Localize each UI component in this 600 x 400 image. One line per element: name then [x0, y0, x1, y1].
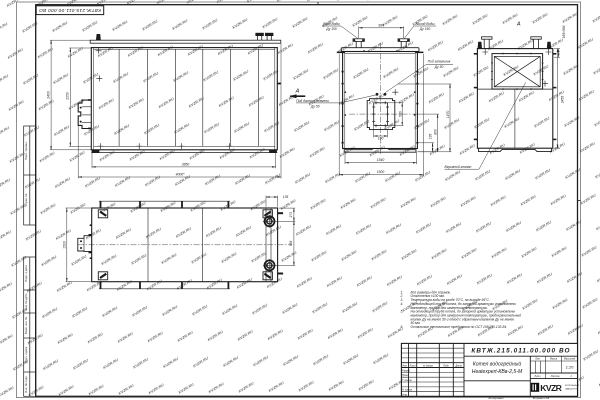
svg-text:КОТЕЛЬНЫЙ: КОТЕЛЬНЫЙ: [565, 384, 579, 387]
svg-text:А: А: [295, 88, 300, 94]
svg-text:Heatexpert-КВв-2,5-М: Heatexpert-КВв-2,5-М: [472, 369, 523, 375]
svg-text:580: 580: [398, 111, 402, 117]
svg-text:Ду 50: Ду 50: [434, 65, 444, 69]
svg-text:ЗАВОД РОС.: ЗАВОД РОС.: [565, 388, 579, 391]
svg-text:Взам. инв. №: Взам. инв. №: [24, 317, 28, 334]
svg-text:Инв. № подл.: Инв. № подл.: [24, 375, 28, 393]
svg-text:Подп. и дата: Подп. и дата: [24, 346, 28, 363]
svg-text:1:20: 1:20: [566, 365, 575, 370]
svg-text:KVZR: KVZR: [540, 383, 562, 393]
svg-text:Дата: Дата: [454, 364, 462, 367]
svg-text:Листов: Листов: [550, 375, 560, 378]
svg-text:6.: 6.: [401, 325, 404, 329]
svg-text:273: 273: [289, 212, 293, 219]
svg-text:Под запальник: Под запальник: [428, 60, 451, 64]
svg-text:Под датчик пламени: Под датчик пламени: [296, 99, 329, 103]
svg-text:954: 954: [378, 23, 384, 27]
svg-text:КВТЖ.215.011.00.000 ВО: КВТЖ.215.011.00.000 ВО: [471, 347, 570, 354]
svg-text:3850: 3850: [182, 162, 190, 166]
svg-text:4000*: 4000*: [176, 172, 186, 176]
svg-text:Пров.: Пров.: [402, 374, 409, 377]
svg-text:Копировал: Копировал: [489, 396, 504, 400]
svg-text:Ду 50: Ду 50: [310, 105, 320, 109]
svg-text:190: 190: [378, 137, 384, 141]
svg-text:Ду 150: Ду 150: [419, 27, 431, 31]
svg-text:Остальные технические требован: Остальные технические требования по ОСТ …: [411, 325, 508, 329]
svg-text:Подп.: Подп.: [443, 364, 450, 367]
svg-text:195: 195: [429, 134, 433, 140]
svg-text:185×954: 185×954: [562, 25, 566, 38]
svg-text:Взрывной клапан: Взрывной клапан: [445, 165, 472, 169]
svg-text:Лист: Лист: [409, 364, 416, 367]
svg-text:Изм.: Изм.: [402, 364, 407, 367]
svg-text:1540: 1540: [377, 158, 385, 162]
svg-text:Подп. и дата: Подп. и дата: [24, 265, 28, 282]
svg-text:5.: 5.: [401, 310, 404, 314]
svg-text:Инв. № дубл.: Инв. № дубл.: [24, 293, 28, 311]
svg-text:954: 954: [289, 240, 293, 246]
svg-text:135: 135: [283, 195, 289, 199]
svg-text:Н. контр.: Н. контр.: [402, 389, 413, 392]
svg-text:Формат А3: Формат А3: [533, 396, 550, 400]
svg-text:клапан Ду не менее 50 и обвод: клапан Ду не менее 50 и обвод с обратным…: [411, 317, 515, 321]
svg-text:2250: 2250: [66, 92, 70, 101]
svg-text:800: 800: [434, 129, 438, 135]
svg-text:Вход Воды: Вход Воды: [323, 22, 340, 26]
svg-text:Перв. примен.: Перв. примен.: [24, 141, 28, 160]
svg-text:1470: 1470: [446, 111, 450, 119]
svg-text:№ докум.: № докум.: [423, 364, 434, 367]
svg-text:Утв.: Утв.: [402, 393, 408, 396]
svg-text:1500: 1500: [377, 170, 385, 174]
svg-text:Котел водогрейный: Котел водогрейный: [473, 361, 522, 368]
svg-text:Лит.: Лит.: [534, 358, 541, 361]
svg-text:А: А: [516, 22, 521, 28]
svg-text:Справ. №: Справ. №: [24, 194, 28, 207]
svg-text:Лист: Лист: [533, 375, 540, 378]
svg-text:Масса: Масса: [550, 358, 558, 361]
svg-text:Масштаб: Масштаб: [564, 358, 576, 361]
svg-text:2400: 2400: [46, 91, 50, 100]
svg-text:2455: 2455: [560, 96, 564, 105]
svg-text:4.: 4.: [401, 302, 404, 306]
svg-text:1500: 1500: [62, 241, 66, 249]
svg-text:Ду 150: Ду 150: [325, 27, 337, 31]
svg-text:Т. контр.: Т. контр.: [402, 379, 413, 382]
svg-text:КВТЖ.215.011.00.000 ВО: КВТЖ.215.011.00.000 ВО: [39, 7, 101, 13]
svg-text:Разраб.: Разраб.: [402, 369, 411, 372]
svg-text:Выход Воды: Выход Воды: [415, 22, 435, 26]
